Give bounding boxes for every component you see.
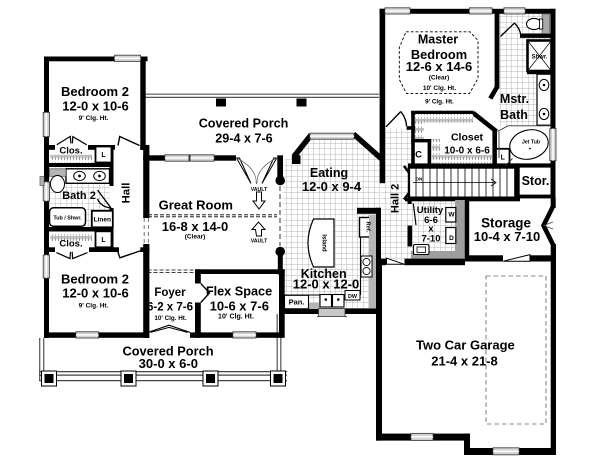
svg-text:12-0 x 12-0: 12-0 x 12-0: [293, 277, 360, 292]
svg-text:Flex Space: Flex Space: [206, 285, 272, 299]
svg-text:VAULT: VAULT: [251, 187, 268, 193]
svg-text:Bath 2: Bath 2: [62, 190, 96, 202]
svg-text:Closet: Closet: [451, 132, 484, 144]
svg-text:Foyer: Foyer: [154, 287, 186, 299]
svg-text:Island: Island: [321, 234, 327, 252]
svg-text:DW: DW: [348, 294, 358, 300]
svg-text:VAULT: VAULT: [251, 238, 268, 244]
svg-text:7-10: 7-10: [421, 234, 440, 245]
svg-text:Stor.: Stor.: [522, 174, 550, 188]
svg-text:10' Clg. Ht.: 10' Clg. Ht.: [218, 314, 254, 321]
svg-text:30-0 x 6-0: 30-0 x 6-0: [139, 356, 198, 371]
svg-text:9' Clg. Ht.: 9' Clg. Ht.: [425, 99, 454, 106]
svg-text:9' Clg. Ht.: 9' Clg. Ht.: [79, 303, 109, 310]
svg-text:Bedroom 2: Bedroom 2: [61, 272, 129, 287]
svg-text:Shwr.: Shwr.: [531, 55, 547, 61]
svg-text:Tub / Shwr.: Tub / Shwr.: [53, 216, 82, 222]
svg-text:6-2 x 7-6: 6-2 x 7-6: [147, 302, 193, 314]
svg-text:Two Car Garage: Two Car Garage: [416, 338, 515, 353]
svg-text:(Clear): (Clear): [429, 75, 450, 82]
svg-text:10-4 x 7-10: 10-4 x 7-10: [474, 229, 541, 244]
svg-text:Bedroom 2: Bedroom 2: [61, 84, 129, 99]
svg-text:L: L: [501, 155, 506, 162]
svg-text:Clos.: Clos.: [59, 239, 82, 250]
svg-text:Covered Porch: Covered Porch: [199, 116, 289, 130]
svg-text:Mstr.: Mstr.: [500, 92, 529, 106]
svg-text:DN: DN: [416, 177, 423, 182]
svg-text:12-6 x 14-6: 12-6 x 14-6: [406, 59, 473, 74]
svg-text:10' Clg. Ht.: 10' Clg. Ht.: [154, 315, 187, 322]
svg-text:Hall: Hall: [120, 183, 132, 204]
svg-text:L: L: [101, 152, 106, 159]
svg-text:Bath: Bath: [500, 108, 528, 122]
svg-text:(Clear): (Clear): [185, 233, 206, 240]
svg-text:29-4 x 7-6: 29-4 x 7-6: [215, 131, 272, 145]
svg-text:10-0 x 6-6: 10-0 x 6-6: [444, 146, 490, 157]
svg-text:Clos.: Clos.: [59, 146, 82, 157]
svg-text:Ref.: Ref.: [365, 222, 371, 233]
svg-text:Hall 2: Hall 2: [389, 184, 401, 213]
svg-text:Pan.: Pan.: [289, 298, 305, 307]
svg-text:12-0 x 9-4: 12-0 x 9-4: [302, 179, 362, 194]
svg-text:Linen: Linen: [94, 217, 111, 224]
svg-text:12-0 x 10-6: 12-0 x 10-6: [62, 286, 129, 301]
svg-text:L: L: [101, 237, 106, 244]
svg-text:Jet Tub: Jet Tub: [522, 140, 540, 146]
svg-text:10-6 x 7-6: 10-6 x 7-6: [210, 298, 269, 313]
svg-text:9' Clg. Ht.: 9' Clg. Ht.: [79, 115, 109, 122]
svg-text:W: W: [448, 212, 455, 219]
svg-text:Eating: Eating: [310, 166, 348, 180]
svg-text:Master: Master: [418, 33, 458, 47]
svg-text:16-8 x 14-0: 16-8 x 14-0: [162, 219, 229, 234]
svg-text:D: D: [449, 235, 454, 242]
svg-text:C: C: [415, 150, 422, 161]
svg-text:12-0 x 10-6: 12-0 x 10-6: [62, 98, 129, 113]
svg-text:Great Room: Great Room: [159, 197, 233, 212]
svg-text:21-4 x 21-8: 21-4 x 21-8: [431, 353, 498, 368]
svg-text:10' Clg. Ht.: 10' Clg. Ht.: [423, 85, 457, 92]
